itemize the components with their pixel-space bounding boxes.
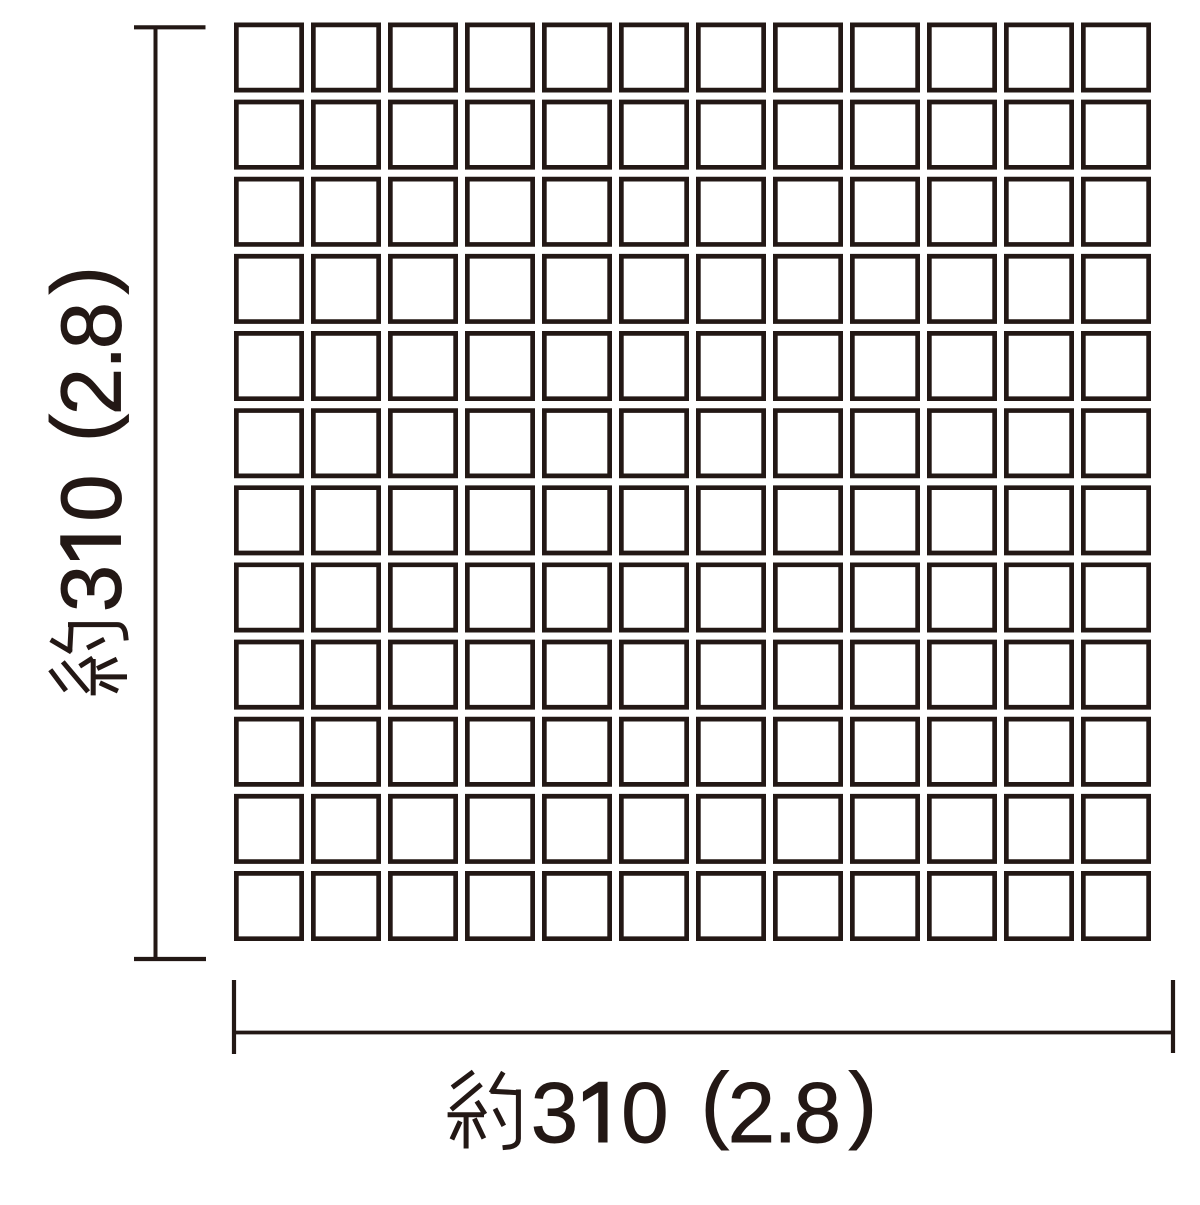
svg-text:8: 8 bbox=[794, 1066, 841, 1161]
svg-text:(: ( bbox=[35, 414, 130, 442]
svg-text:3: 3 bbox=[45, 565, 140, 612]
svg-text:(: ( bbox=[701, 1057, 729, 1152]
svg-text:8: 8 bbox=[45, 302, 140, 349]
svg-text:3: 3 bbox=[531, 1066, 578, 1161]
svg-text:2: 2 bbox=[45, 368, 140, 415]
svg-text:0: 0 bbox=[45, 474, 140, 521]
svg-text:2: 2 bbox=[728, 1066, 775, 1161]
svg-text:): ) bbox=[35, 266, 130, 294]
svg-text:): ) bbox=[849, 1057, 877, 1152]
svg-text:0: 0 bbox=[621, 1066, 668, 1161]
